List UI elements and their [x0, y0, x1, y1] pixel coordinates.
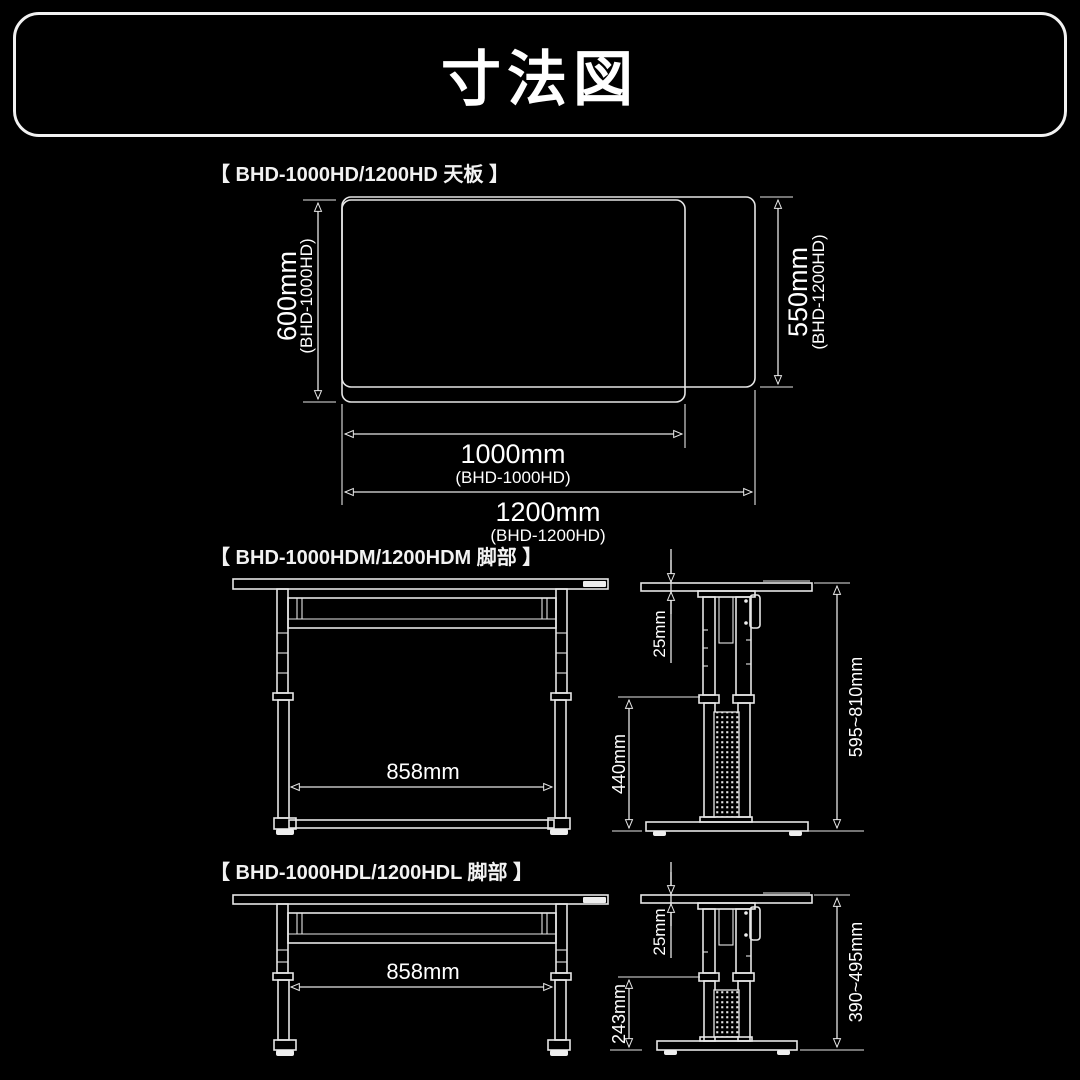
section-legs-hdl: 【 BHD-1000HDL/1200HDL 脚部 】 [210, 860, 866, 1056]
dim-depth-1200: 550mm (BHD-1200HD) [760, 197, 828, 387]
dim-width-1000-value: 1000mm [460, 439, 565, 469]
dim-hdl-height-range-value: 390~495mm [846, 922, 866, 1023]
section-tabletop-title: 【 BHD-1000HD/1200HD 天板 】 [210, 162, 509, 186]
dim-hdl-top-thickness: 25mm [650, 862, 671, 958]
dim-hdl-inner-width: 858mm [291, 959, 552, 987]
dim-hdl-inner-width-value: 858mm [386, 959, 459, 984]
cable-duct-panel [714, 712, 739, 817]
dim-depth-1000-model: (BHD-1000HD) [297, 238, 316, 353]
dim-hdl-column-height: 243mm [609, 977, 700, 1050]
dim-hdm-top-thickness: 25mm [650, 549, 671, 663]
section-legs-hdm: 【 BHD-1000HDM/1200HDM 脚部 】 [210, 545, 866, 836]
dim-width-1000-model: (BHD-1000HD) [455, 468, 570, 487]
hdm-side-view: 25mm 440mm 595~810mm [609, 549, 866, 836]
section-tabletop: 【 BHD-1000HD/1200HD 天板 】 600mm (BHD-1000… [210, 162, 828, 545]
dim-hdm-inner-width: 858mm [291, 759, 552, 787]
tabletop-outline [342, 197, 755, 402]
dim-hdm-top-thickness-value: 25mm [650, 610, 669, 657]
dim-hdm-column-height-value: 440mm [609, 734, 629, 794]
hdl-side-view: 25mm 243mm 390~495mm [609, 862, 866, 1055]
section-legs-hdm-title: 【 BHD-1000HDM/1200HDM 脚部 】 [210, 545, 542, 569]
dim-depth-1000: 600mm (BHD-1000HD) [272, 200, 336, 402]
dim-width-1000: 1000mm (BHD-1000HD) [342, 404, 685, 505]
hdm-front-view: 858mm [233, 579, 608, 835]
cable-duct-panel [714, 990, 739, 1037]
dim-hdl-height-range: 390~495mm [800, 895, 866, 1050]
brand-plate [583, 581, 606, 587]
dim-depth-1200-model: (BHD-1200HD) [809, 234, 828, 349]
dim-hdl-top-thickness-value: 25mm [650, 908, 669, 955]
section-legs-hdl-title: 【 BHD-1000HDL/1200HDL 脚部 】 [210, 860, 533, 884]
dim-width-1200-model: (BHD-1200HD) [490, 526, 605, 545]
dim-hdm-inner-width-value: 858mm [386, 759, 459, 784]
dim-hdl-column-height-value: 243mm [609, 984, 629, 1044]
dim-width-1200-value: 1200mm [495, 497, 600, 527]
dim-hdm-column-height: 440mm [609, 697, 700, 831]
hdl-front-view: 858mm [233, 895, 608, 1056]
page: 寸法図 【 BHD-1000HD/1200HD 天板 】 [0, 0, 1080, 1080]
dimension-diagram: 【 BHD-1000HD/1200HD 天板 】 600mm (BHD-1000… [0, 0, 1080, 1080]
brand-plate [583, 897, 606, 903]
dim-hdm-height-range-value: 595~810mm [846, 657, 866, 758]
dim-hdm-height-range: 595~810mm [806, 583, 866, 831]
